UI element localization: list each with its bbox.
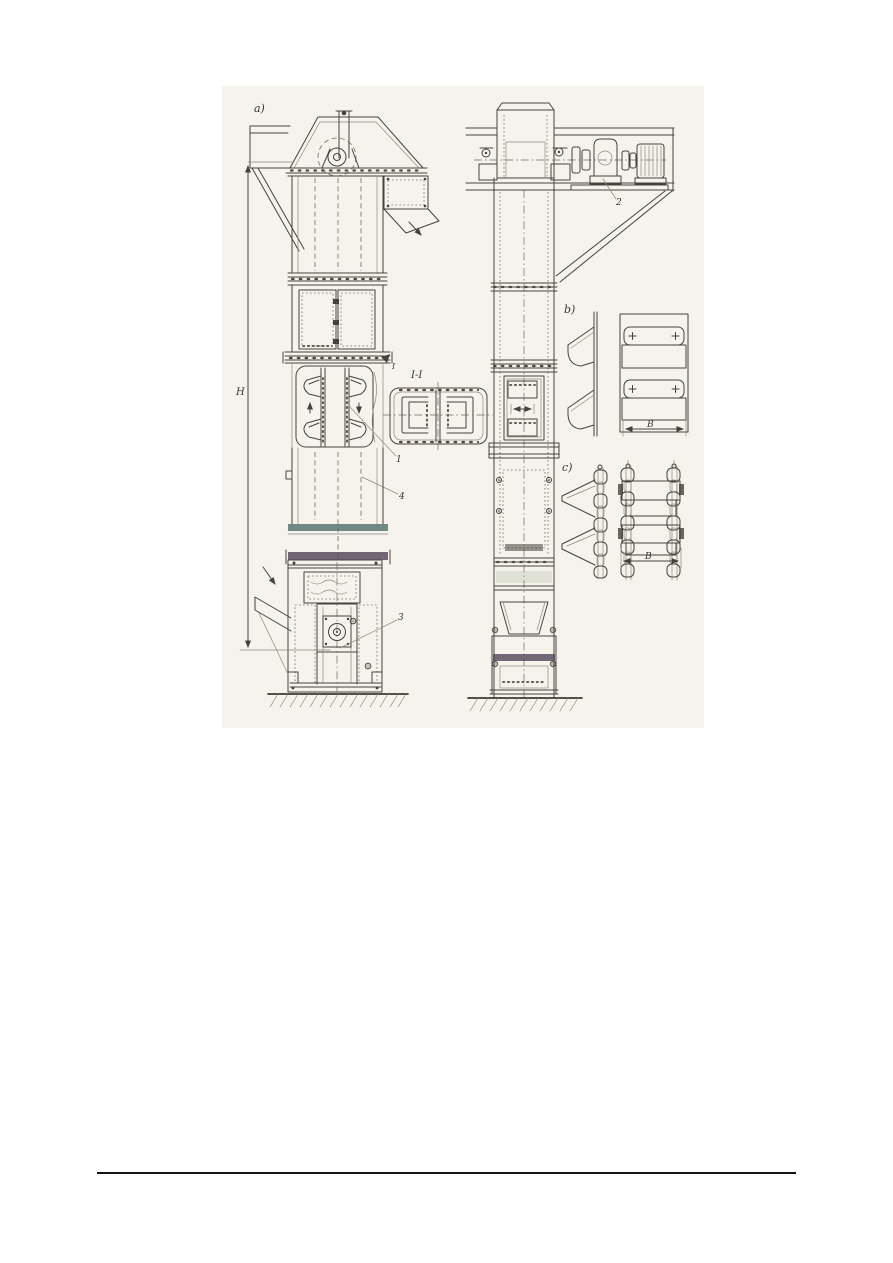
label-part-drive: 2: [615, 198, 622, 208]
scan-paper: [222, 86, 704, 728]
label-part-take-up: 3: [398, 613, 404, 623]
label-dimension-height: H: [235, 387, 245, 398]
door-hinge: [333, 320, 339, 325]
label-section: I-I: [410, 370, 423, 381]
shaft-cap-bolt: [342, 111, 347, 116]
label-dimension-chain-width: B: [644, 552, 652, 562]
label-view-a: a): [254, 102, 265, 115]
flange-band: [288, 552, 388, 560]
door-hinge: [333, 299, 339, 304]
flange-band: [288, 524, 388, 531]
label-part-casing: 4: [398, 492, 405, 502]
page-footer-rule: [97, 1172, 796, 1174]
document-page: a): [0, 0, 893, 1263]
technical-drawing: a): [0, 0, 893, 1263]
door-hinge: [333, 339, 339, 344]
label-part-bucket: 1: [396, 455, 402, 465]
label-dimension-belt-width: B: [646, 420, 654, 430]
label-view-c: c): [562, 461, 572, 474]
label-view-b: b): [564, 303, 575, 316]
flange-band: [493, 654, 555, 661]
